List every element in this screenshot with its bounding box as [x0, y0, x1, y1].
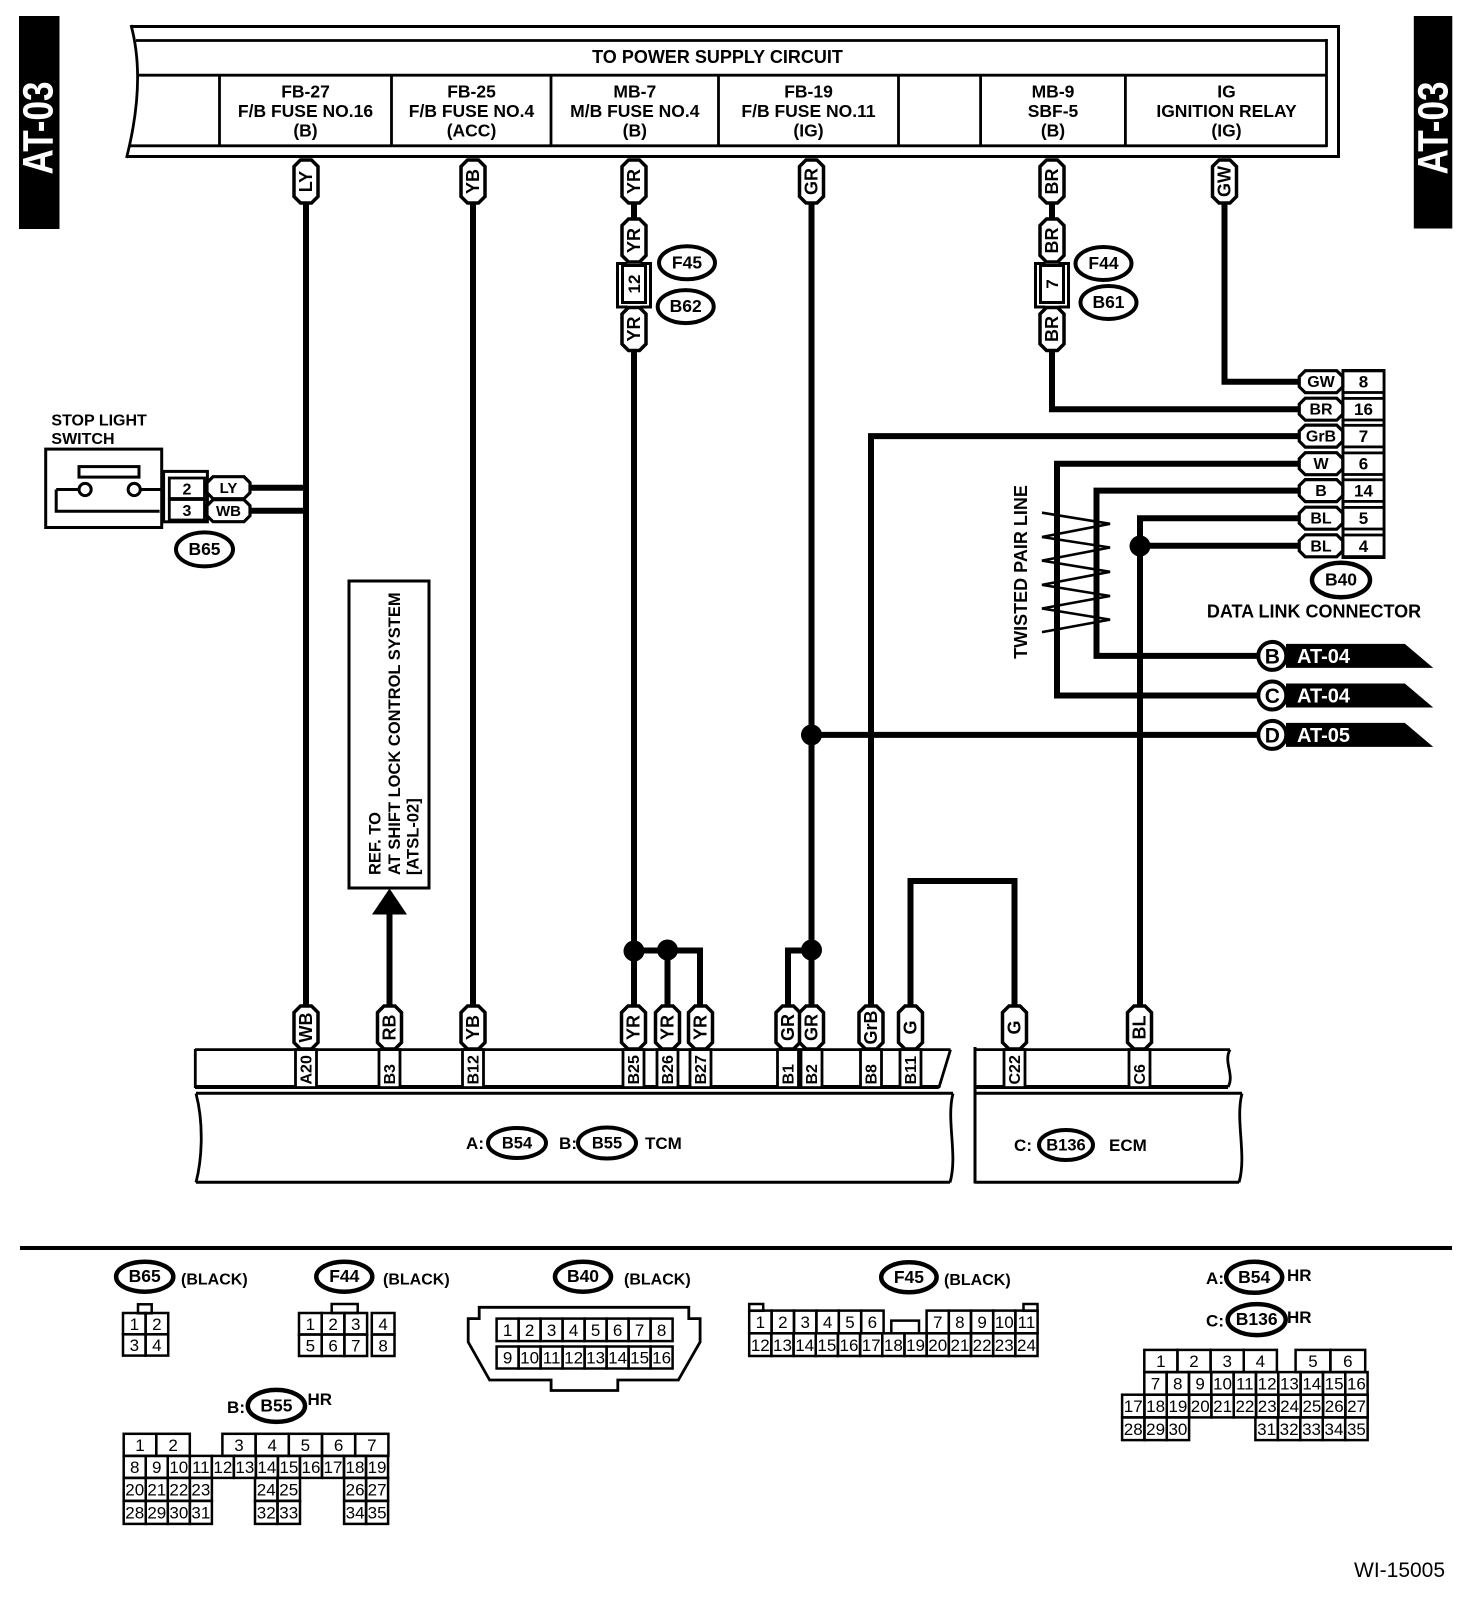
svg-text:B3: B3 [382, 1064, 399, 1085]
svg-text:B55: B55 [260, 1395, 292, 1415]
svg-text:C22: C22 [1007, 1055, 1024, 1084]
svg-text:9: 9 [1195, 1375, 1204, 1394]
svg-text:34: 34 [1325, 1420, 1344, 1439]
svg-text:12: 12 [1258, 1375, 1277, 1394]
svg-text:2: 2 [183, 482, 192, 499]
svg-text:A20: A20 [299, 1055, 316, 1084]
svg-text:3: 3 [547, 1321, 556, 1340]
svg-text:3: 3 [183, 503, 192, 520]
svg-text:26: 26 [346, 1481, 365, 1500]
svg-text:19: 19 [368, 1458, 387, 1477]
svg-text:B62: B62 [670, 296, 702, 316]
svg-text:3: 3 [800, 1313, 809, 1332]
svg-text:B54: B54 [1238, 1267, 1270, 1287]
svg-text:35: 35 [368, 1504, 387, 1523]
svg-text:7: 7 [1043, 279, 1062, 288]
svg-text:34: 34 [346, 1504, 365, 1523]
svg-text:4: 4 [1359, 537, 1369, 556]
svg-text:B: B [1315, 483, 1327, 500]
svg-text:28: 28 [1124, 1420, 1143, 1439]
svg-text:9: 9 [977, 1313, 986, 1332]
svg-text:A:: A: [466, 1134, 484, 1153]
svg-text:31: 31 [191, 1504, 210, 1523]
svg-text:9: 9 [152, 1458, 161, 1477]
svg-text:G: G [1005, 1020, 1025, 1034]
svg-text:GR: GR [778, 1014, 798, 1041]
svg-text:6: 6 [1359, 455, 1368, 474]
svg-text:B40: B40 [567, 1266, 599, 1286]
svg-text:8: 8 [657, 1321, 666, 1340]
svg-text:2: 2 [168, 1436, 177, 1455]
svg-text:B54: B54 [502, 1135, 533, 1153]
svg-text:32: 32 [257, 1504, 276, 1523]
svg-text:19: 19 [1168, 1397, 1187, 1416]
svg-text:14: 14 [257, 1458, 276, 1477]
svg-text:B65: B65 [129, 1266, 161, 1286]
svg-text:C:: C: [1014, 1136, 1032, 1155]
svg-text:20: 20 [1191, 1397, 1210, 1416]
svg-text:4: 4 [823, 1313, 832, 1332]
svg-text:14: 14 [608, 1349, 627, 1368]
svg-text:F/B FUSE NO.16: F/B FUSE NO.16 [238, 101, 373, 121]
svg-text:YR: YR [624, 169, 644, 194]
svg-text:(B): (B) [1041, 121, 1065, 141]
svg-text:B2: B2 [804, 1064, 821, 1085]
svg-text:F/B FUSE NO.4: F/B FUSE NO.4 [409, 101, 535, 121]
svg-text:YB: YB [463, 169, 483, 194]
svg-text:6: 6 [613, 1321, 622, 1340]
svg-text:1: 1 [130, 1315, 139, 1334]
svg-text:30: 30 [1168, 1420, 1187, 1439]
svg-text:B27: B27 [693, 1055, 710, 1084]
svg-text:B:: B: [227, 1398, 245, 1417]
svg-text:6: 6 [334, 1436, 343, 1455]
svg-text:MB-9: MB-9 [1032, 82, 1075, 102]
svg-text:W: W [1313, 456, 1329, 473]
svg-text:SWITCH: SWITCH [51, 431, 114, 448]
svg-text:7: 7 [1359, 427, 1368, 446]
svg-text:C:: C: [1206, 1312, 1224, 1331]
svg-text:RB: RB [380, 1015, 400, 1041]
svg-text:BR: BR [1042, 228, 1062, 254]
svg-text:4: 4 [152, 1336, 161, 1355]
svg-text:GW: GW [1307, 374, 1335, 391]
svg-text:FB-25: FB-25 [447, 82, 496, 102]
svg-text:B: B [1265, 645, 1280, 668]
svg-text:9: 9 [503, 1349, 512, 1368]
svg-text:BR: BR [1309, 402, 1333, 419]
svg-text:B65: B65 [188, 539, 220, 559]
svg-text:16: 16 [301, 1458, 320, 1477]
svg-text:13: 13 [586, 1349, 605, 1368]
svg-text:15: 15 [630, 1349, 649, 1368]
svg-text:11: 11 [1236, 1375, 1254, 1394]
svg-text:REF. TO: REF. TO [367, 812, 385, 875]
svg-text:YR: YR [658, 1015, 678, 1040]
svg-text:8: 8 [1359, 373, 1368, 392]
svg-text:LY: LY [296, 171, 316, 192]
svg-text:B8: B8 [864, 1064, 881, 1085]
svg-text:(BLACK): (BLACK) [383, 1272, 450, 1289]
svg-text:B136: B136 [1046, 1137, 1085, 1155]
svg-text:AT-03: AT-03 [1410, 82, 1458, 175]
svg-text:MB-7: MB-7 [613, 82, 656, 102]
svg-text:22: 22 [1235, 1397, 1254, 1416]
svg-text:BR: BR [1042, 316, 1062, 342]
svg-text:BL: BL [1310, 538, 1332, 555]
svg-text:21: 21 [1213, 1397, 1232, 1416]
svg-text:19: 19 [906, 1336, 925, 1355]
svg-text:B:: B: [559, 1134, 577, 1153]
svg-text:14: 14 [1354, 482, 1373, 501]
svg-text:8: 8 [378, 1336, 387, 1355]
svg-text:7: 7 [367, 1436, 376, 1455]
svg-text:D: D [1265, 724, 1280, 747]
svg-text:10: 10 [169, 1458, 188, 1477]
svg-text:F/B FUSE NO.11: F/B FUSE NO.11 [741, 101, 875, 121]
svg-text:32: 32 [1280, 1420, 1299, 1439]
svg-text:21: 21 [950, 1336, 969, 1355]
svg-text:18: 18 [884, 1336, 903, 1355]
svg-text:TWISTED PAIR LINE: TWISTED PAIR LINE [1011, 485, 1031, 659]
svg-text:13: 13 [235, 1458, 254, 1477]
svg-text:B11: B11 [903, 1056, 920, 1085]
svg-text:WB: WB [296, 1013, 316, 1043]
svg-text:AT-03: AT-03 [15, 82, 63, 175]
svg-text:B25: B25 [626, 1055, 643, 1084]
svg-text:BL: BL [1130, 1016, 1150, 1040]
svg-text:11: 11 [1018, 1313, 1036, 1332]
svg-text:14: 14 [795, 1336, 814, 1355]
svg-text:(B): (B) [293, 121, 317, 141]
svg-text:B26: B26 [660, 1055, 677, 1084]
svg-text:1: 1 [1156, 1352, 1165, 1371]
svg-text:B12: B12 [466, 1055, 483, 1084]
svg-text:24: 24 [257, 1481, 276, 1500]
svg-text:23: 23 [1258, 1397, 1277, 1416]
svg-text:12: 12 [564, 1349, 583, 1368]
svg-text:17: 17 [862, 1336, 881, 1355]
svg-text:16: 16 [1354, 400, 1373, 419]
svg-text:11: 11 [543, 1349, 561, 1368]
svg-text:24: 24 [1017, 1336, 1036, 1355]
svg-text:7: 7 [635, 1321, 644, 1340]
svg-text:26: 26 [1325, 1397, 1344, 1416]
svg-text:(BLACK): (BLACK) [624, 1272, 691, 1289]
svg-text:22: 22 [169, 1481, 188, 1500]
svg-text:SBF-5: SBF-5 [1028, 101, 1079, 121]
svg-text:YR: YR [624, 1015, 644, 1040]
svg-text:20: 20 [125, 1481, 144, 1500]
svg-text:FB-19: FB-19 [784, 82, 833, 102]
svg-text:B40: B40 [1325, 570, 1357, 590]
svg-text:20: 20 [928, 1336, 947, 1355]
svg-text:5: 5 [1308, 1352, 1317, 1371]
svg-text:3: 3 [234, 1436, 243, 1455]
svg-text:1: 1 [135, 1436, 144, 1455]
svg-text:4: 4 [378, 1315, 387, 1334]
svg-text:DATA LINK CONNECTOR: DATA LINK CONNECTOR [1207, 602, 1421, 622]
svg-text:25: 25 [279, 1481, 298, 1500]
svg-text:5: 5 [301, 1436, 310, 1455]
svg-text:10: 10 [520, 1349, 539, 1368]
svg-text:16: 16 [840, 1336, 859, 1355]
svg-text:YB: YB [463, 1015, 483, 1040]
svg-text:AT-04: AT-04 [1297, 686, 1351, 708]
svg-text:AT-04: AT-04 [1297, 646, 1351, 668]
svg-text:15: 15 [279, 1458, 298, 1477]
svg-text:[ATSL-02]: [ATSL-02] [405, 798, 423, 875]
svg-text:AT SHIFT LOCK CONTROL SYSTEM: AT SHIFT LOCK CONTROL SYSTEM [386, 592, 404, 875]
svg-text:F44: F44 [329, 1266, 359, 1286]
svg-text:17: 17 [1124, 1397, 1143, 1416]
svg-text:B55: B55 [592, 1135, 622, 1153]
svg-text:2: 2 [1189, 1352, 1198, 1371]
svg-text:23: 23 [191, 1481, 210, 1500]
svg-text:5: 5 [1359, 509, 1368, 528]
svg-text:29: 29 [1146, 1420, 1165, 1439]
svg-text:HR: HR [1287, 1266, 1312, 1285]
svg-text:YR: YR [624, 316, 644, 341]
svg-text:2: 2 [328, 1315, 337, 1334]
svg-text:1: 1 [756, 1313, 765, 1332]
svg-text:GR: GR [802, 1014, 822, 1041]
svg-text:IGNITION RELAY: IGNITION RELAY [1156, 101, 1297, 121]
svg-text:WI-15005: WI-15005 [1354, 1559, 1445, 1582]
svg-text:FB-27: FB-27 [281, 82, 330, 102]
svg-text:TCM: TCM [645, 1134, 682, 1153]
svg-text:YR: YR [624, 228, 644, 253]
svg-text:2: 2 [152, 1315, 161, 1334]
svg-text:F44: F44 [1088, 253, 1118, 273]
svg-text:15: 15 [1325, 1375, 1344, 1394]
svg-text:27: 27 [368, 1481, 387, 1500]
svg-text:25: 25 [1302, 1397, 1321, 1416]
svg-text:7: 7 [351, 1336, 360, 1355]
svg-text:8: 8 [955, 1313, 964, 1332]
svg-text:IG: IG [1217, 82, 1235, 102]
svg-text:11: 11 [192, 1458, 210, 1477]
svg-text:21: 21 [147, 1481, 166, 1500]
svg-text:C6: C6 [1132, 1064, 1149, 1085]
svg-text:1: 1 [503, 1321, 512, 1340]
svg-text:(B): (B) [623, 121, 647, 141]
svg-text:14: 14 [1302, 1375, 1321, 1394]
svg-text:GW: GW [1215, 166, 1235, 197]
svg-text:4: 4 [1256, 1352, 1265, 1371]
svg-text:HR: HR [1287, 1308, 1312, 1327]
svg-text:7: 7 [1151, 1375, 1160, 1394]
svg-text:BL: BL [1310, 511, 1332, 528]
svg-text:GrB: GrB [1306, 429, 1336, 446]
svg-text:(BLACK): (BLACK) [181, 1272, 248, 1289]
svg-text:BR: BR [1042, 169, 1062, 195]
svg-text:15: 15 [817, 1336, 836, 1355]
svg-text:27: 27 [1347, 1397, 1366, 1416]
svg-text:12: 12 [213, 1458, 232, 1477]
svg-text:B1: B1 [781, 1064, 798, 1085]
svg-text:24: 24 [1280, 1397, 1299, 1416]
svg-text:4: 4 [267, 1436, 276, 1455]
svg-text:B61: B61 [1092, 292, 1124, 312]
svg-text:3: 3 [351, 1315, 360, 1334]
svg-text:16: 16 [1347, 1375, 1366, 1394]
svg-text:LY: LY [220, 480, 238, 497]
svg-text:28: 28 [125, 1504, 144, 1523]
svg-text:6: 6 [868, 1313, 877, 1332]
svg-text:M/B FUSE NO.4: M/B FUSE NO.4 [570, 101, 700, 121]
svg-text:33: 33 [1302, 1420, 1321, 1439]
svg-text:GR: GR [802, 168, 822, 195]
svg-text:G: G [901, 1020, 921, 1034]
svg-text:B136: B136 [1236, 1309, 1278, 1329]
svg-text:5: 5 [306, 1336, 315, 1355]
svg-text:5: 5 [591, 1321, 600, 1340]
svg-text:10: 10 [995, 1313, 1014, 1332]
svg-text:8: 8 [1173, 1375, 1182, 1394]
svg-text:30: 30 [169, 1504, 188, 1523]
svg-text:STOP LIGHT: STOP LIGHT [51, 413, 147, 430]
svg-text:12: 12 [751, 1336, 770, 1355]
svg-text:3: 3 [1222, 1352, 1231, 1371]
svg-text:GrB: GrB [861, 1010, 881, 1044]
svg-text:C: C [1265, 685, 1280, 708]
svg-text:10: 10 [1213, 1375, 1232, 1394]
svg-text:22: 22 [973, 1336, 992, 1355]
svg-text:A:: A: [1206, 1269, 1224, 1288]
svg-text:23: 23 [995, 1336, 1014, 1355]
svg-text:33: 33 [279, 1504, 298, 1523]
svg-text:HR: HR [308, 1390, 333, 1409]
svg-text:18: 18 [1146, 1397, 1165, 1416]
svg-text:16: 16 [652, 1349, 671, 1368]
svg-text:12: 12 [625, 275, 644, 294]
svg-text:6: 6 [1343, 1352, 1352, 1371]
svg-text:13: 13 [1280, 1375, 1299, 1394]
svg-text:WB: WB [216, 503, 241, 520]
svg-text:2: 2 [778, 1313, 787, 1332]
svg-text:13: 13 [773, 1336, 792, 1355]
svg-text:AT-05: AT-05 [1297, 725, 1350, 747]
svg-text:F45: F45 [672, 252, 702, 272]
svg-text:ECM: ECM [1109, 1136, 1147, 1155]
svg-text:18: 18 [346, 1458, 365, 1477]
svg-text:TO POWER SUPPLY CIRCUIT: TO POWER SUPPLY CIRCUIT [592, 47, 843, 67]
svg-text:2: 2 [525, 1321, 534, 1340]
svg-text:17: 17 [324, 1458, 343, 1477]
svg-text:F45: F45 [894, 1267, 924, 1287]
svg-text:(IG): (IG) [1211, 121, 1241, 141]
svg-text:1: 1 [306, 1315, 315, 1334]
svg-text:(BLACK): (BLACK) [944, 1272, 1011, 1289]
svg-text:(ACC): (ACC) [447, 121, 497, 141]
svg-text:8: 8 [130, 1458, 139, 1477]
svg-text:6: 6 [328, 1336, 337, 1355]
svg-text:3: 3 [130, 1336, 139, 1355]
svg-text:(IG): (IG) [793, 121, 823, 141]
svg-text:YR: YR [691, 1015, 711, 1040]
svg-text:7: 7 [933, 1313, 942, 1332]
svg-text:35: 35 [1347, 1420, 1366, 1439]
svg-text:31: 31 [1257, 1420, 1276, 1439]
svg-text:29: 29 [147, 1504, 166, 1523]
svg-text:5: 5 [845, 1313, 854, 1332]
svg-text:4: 4 [569, 1321, 578, 1340]
